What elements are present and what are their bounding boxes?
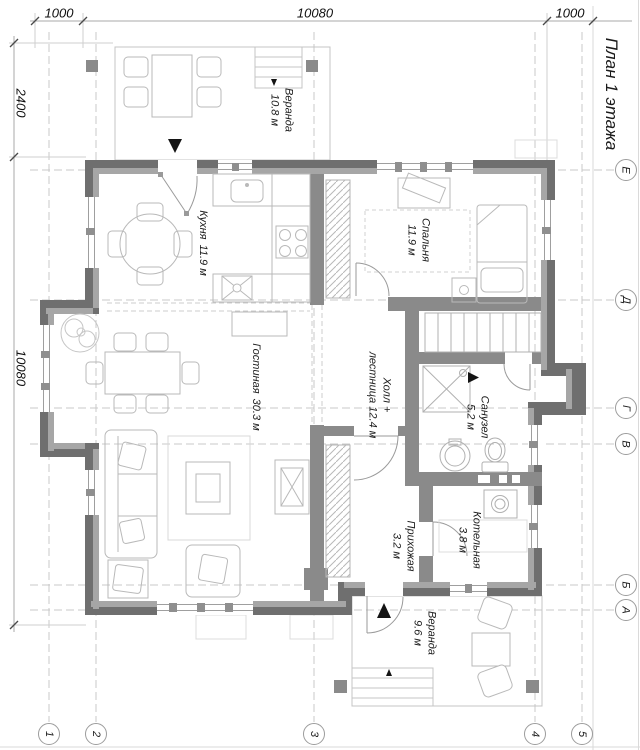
entrance-arrow-top-icon	[168, 139, 182, 153]
dim-label-left-upper: 2400	[14, 89, 29, 118]
drawing-title: План 1 этажа	[601, 38, 621, 151]
axis-marker-e: Е	[615, 159, 637, 181]
toilet-icon	[482, 438, 508, 472]
axis-marker-5: 5	[571, 723, 593, 745]
room-label-hall: Холл + лестница 12.4 м	[365, 352, 394, 439]
dim-label-left-lower: 10080	[14, 350, 29, 386]
dim-label-top-left: 1000	[45, 6, 74, 21]
veranda-bottom-furniture	[472, 596, 514, 699]
room-label-veranda-bottom: Веранда 9.6 м	[410, 611, 439, 655]
fireplace-icon	[275, 460, 309, 514]
staircase	[425, 313, 541, 352]
floor-plan-sheet: План 1 этажа 1000 10080 1000 2400 10080 …	[0, 0, 640, 750]
axis-marker-v: В	[615, 433, 637, 455]
bedroom-furniture	[365, 173, 527, 303]
room-label-entry: Прихожая 3.2 м	[389, 520, 418, 571]
wardrobe-closets	[326, 180, 350, 577]
room-openings	[107, 303, 322, 425]
room-label-bedroom: Спальня 11.9 м	[404, 218, 433, 262]
stair-arrow-top-icon	[271, 79, 277, 86]
axis-marker-g: Г	[615, 397, 637, 419]
axis-marker-3: 3	[303, 723, 325, 745]
floor-plan-drawing	[0, 0, 640, 750]
axis-marker-1: 1	[38, 723, 60, 745]
dim-label-top-center: 10080	[297, 6, 333, 21]
room-label-boiler: Котельная 3.8 м	[455, 511, 484, 569]
veranda-top-furniture	[124, 55, 221, 117]
axis-marker-4: 4	[524, 723, 546, 745]
axis-marker-d: Д	[615, 289, 637, 311]
room-label-bathroom: Санузел 5.2 м	[463, 396, 492, 439]
wall-vents	[478, 475, 520, 483]
room-label-veranda-top: Веранда 10.8 м	[267, 88, 296, 132]
bathroom-door-arrow-icon	[468, 372, 479, 383]
axis-marker-b: Б	[615, 574, 637, 596]
plant-icon	[61, 314, 99, 352]
axis-marker-2: 2	[85, 723, 107, 745]
dim-label-top-right: 1000	[556, 6, 585, 21]
room-label-living: Гостиная 30.3 м	[249, 342, 263, 431]
stair-arrow-bottom-icon	[386, 669, 392, 676]
axis-marker-a: А	[615, 599, 637, 621]
room-label-kitchen: Кухня 11.9 м	[196, 209, 210, 277]
